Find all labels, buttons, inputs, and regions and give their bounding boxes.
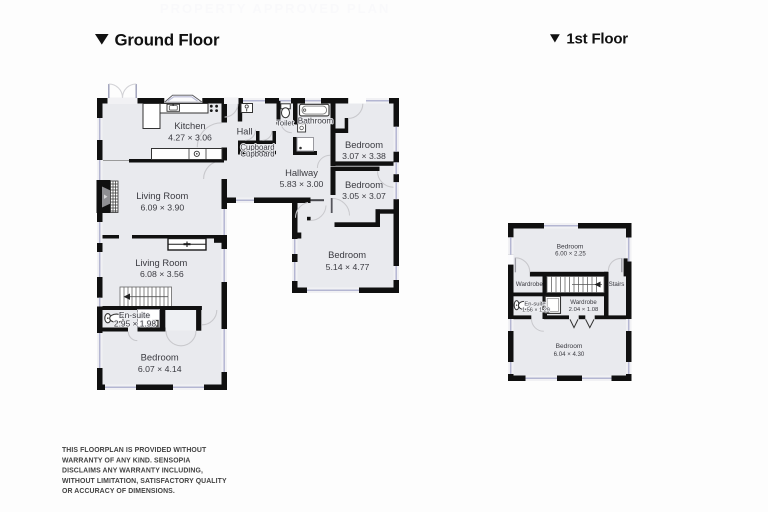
svg-text:1st Floor: 1st Floor — [566, 30, 628, 47]
svg-text:Bedroom: Bedroom — [345, 179, 383, 190]
svg-text:3.07 × 3.38: 3.07 × 3.38 — [342, 151, 386, 161]
svg-text:Cupboard: Cupboard — [240, 149, 274, 158]
svg-text:Hallway: Hallway — [285, 167, 318, 178]
svg-text:PROPERTY APPROVED PLAN: PROPERTY APPROVED PLAN — [160, 1, 390, 16]
svg-text:WARRANTY OF ANY KIND. SENSOPIA: WARRANTY OF ANY KIND. SENSOPIA — [62, 457, 190, 464]
svg-text:DISCLAIMS ANY WARRANTY INCLUDI: DISCLAIMS ANY WARRANTY INCLUDING, — [62, 468, 203, 475]
svg-text:Bedroom: Bedroom — [345, 139, 383, 150]
svg-text:6.08 × 3.56: 6.08 × 3.56 — [140, 269, 184, 279]
svg-text:6.07 × 4.14: 6.07 × 4.14 — [138, 364, 182, 374]
svg-text:WITHOUT LIMITATION, SATISFACTO: WITHOUT LIMITATION, SATISFACTORY QUALITY — [62, 478, 227, 485]
svg-text:THIS FLOORPLAN IS PROVIDED WIT: THIS FLOORPLAN IS PROVIDED WITHOUT — [62, 447, 207, 454]
svg-text:6.04 × 4.30: 6.04 × 4.30 — [554, 351, 585, 358]
svg-text:3.05 × 3.07: 3.05 × 3.07 — [342, 191, 386, 201]
svg-text:5.14 × 4.77: 5.14 × 4.77 — [326, 262, 370, 272]
svg-text:Wardrobe: Wardrobe — [570, 299, 597, 306]
svg-text:Bedroom: Bedroom — [557, 243, 584, 250]
svg-text:OR ACCURACY OF DIMENSIONS.: OR ACCURACY OF DIMENSIONS. — [62, 488, 175, 495]
svg-text:2.95 × 1.98: 2.95 × 1.98 — [114, 319, 156, 329]
svg-text:Ground Floor: Ground Floor — [115, 31, 220, 50]
svg-text:Bedroom: Bedroom — [141, 351, 179, 362]
svg-text:Living Room: Living Room — [136, 190, 188, 201]
svg-text:En-suite: En-suite — [524, 301, 545, 307]
svg-text:Stairs: Stairs — [609, 281, 625, 288]
svg-text:1.56 × 1.29: 1.56 × 1.29 — [522, 308, 550, 314]
svg-text:2.04 × 1.08: 2.04 × 1.08 — [569, 307, 599, 313]
svg-text:Bathroom: Bathroom — [298, 117, 334, 126]
svg-text:4.27 × 3.06: 4.27 × 3.06 — [168, 132, 212, 142]
svg-text:6.09 × 3.90: 6.09 × 3.90 — [140, 202, 184, 212]
svg-text:Toilet: Toilet — [276, 119, 295, 128]
svg-text:6.00 × 2.25: 6.00 × 2.25 — [555, 251, 586, 258]
svg-text:Living Room: Living Room — [135, 257, 187, 268]
svg-text:Bedroom: Bedroom — [556, 343, 583, 350]
svg-text:Bedroom: Bedroom — [328, 249, 366, 260]
svg-text:Wardrobe: Wardrobe — [516, 281, 543, 288]
svg-text:Hall: Hall — [237, 126, 253, 136]
svg-text:5.83 × 3.00: 5.83 × 3.00 — [280, 179, 324, 189]
svg-text:Kitchen: Kitchen — [174, 120, 205, 131]
